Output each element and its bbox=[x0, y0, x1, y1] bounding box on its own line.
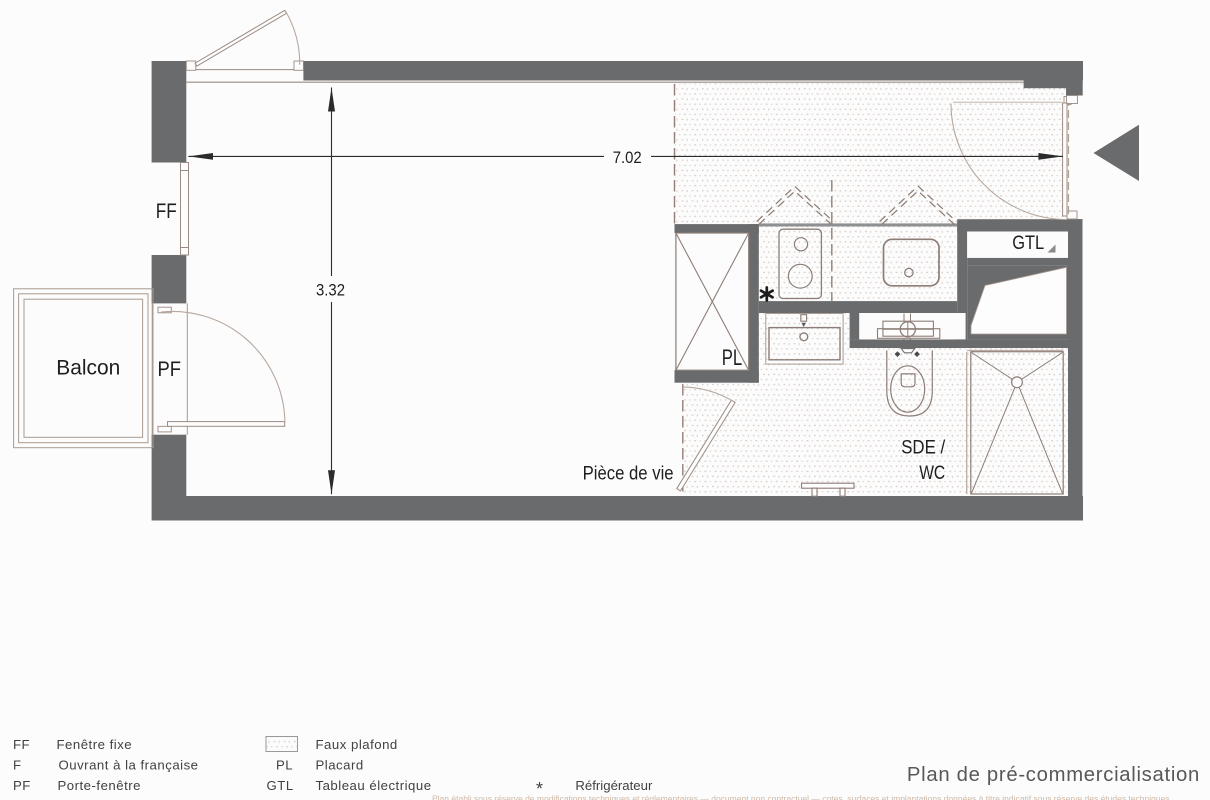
svg-text:Plan établi sous réserve de mo: Plan établi sous réserve de modification… bbox=[432, 794, 1170, 800]
svg-text:PF: PF bbox=[158, 358, 182, 381]
svg-text:GTL: GTL bbox=[267, 778, 294, 793]
svg-text:PF: PF bbox=[13, 778, 31, 793]
svg-text:FF: FF bbox=[13, 737, 30, 752]
svg-text:SDE /: SDE / bbox=[901, 438, 946, 459]
svg-text:F: F bbox=[13, 758, 22, 773]
svg-text:Fenêtre fixe: Fenêtre fixe bbox=[57, 737, 133, 752]
svg-text:Tableau électrique: Tableau électrique bbox=[316, 778, 432, 793]
svg-text:Faux plafond: Faux plafond bbox=[316, 737, 398, 752]
svg-text:PL: PL bbox=[722, 345, 743, 370]
svg-text:Porte-fenêtre: Porte-fenêtre bbox=[58, 778, 141, 793]
svg-text:PL: PL bbox=[276, 758, 293, 773]
svg-text:Ouvrant à la française: Ouvrant à la française bbox=[59, 758, 199, 773]
svg-text:FF: FF bbox=[156, 200, 177, 223]
svg-text:3.32: 3.32 bbox=[316, 281, 345, 300]
svg-text:WC: WC bbox=[919, 463, 945, 484]
svg-text:Plan de pré-commercialisation: Plan de pré-commercialisation bbox=[907, 764, 1200, 786]
svg-text:Pièce de vie: Pièce de vie bbox=[583, 462, 674, 484]
svg-text:Balcon: Balcon bbox=[56, 356, 120, 379]
svg-text:7.02: 7.02 bbox=[613, 148, 642, 167]
svg-text:Réfrigérateur: Réfrigérateur bbox=[575, 778, 653, 793]
svg-text:Placard: Placard bbox=[316, 758, 364, 773]
svg-text:GTL: GTL bbox=[1012, 232, 1044, 254]
